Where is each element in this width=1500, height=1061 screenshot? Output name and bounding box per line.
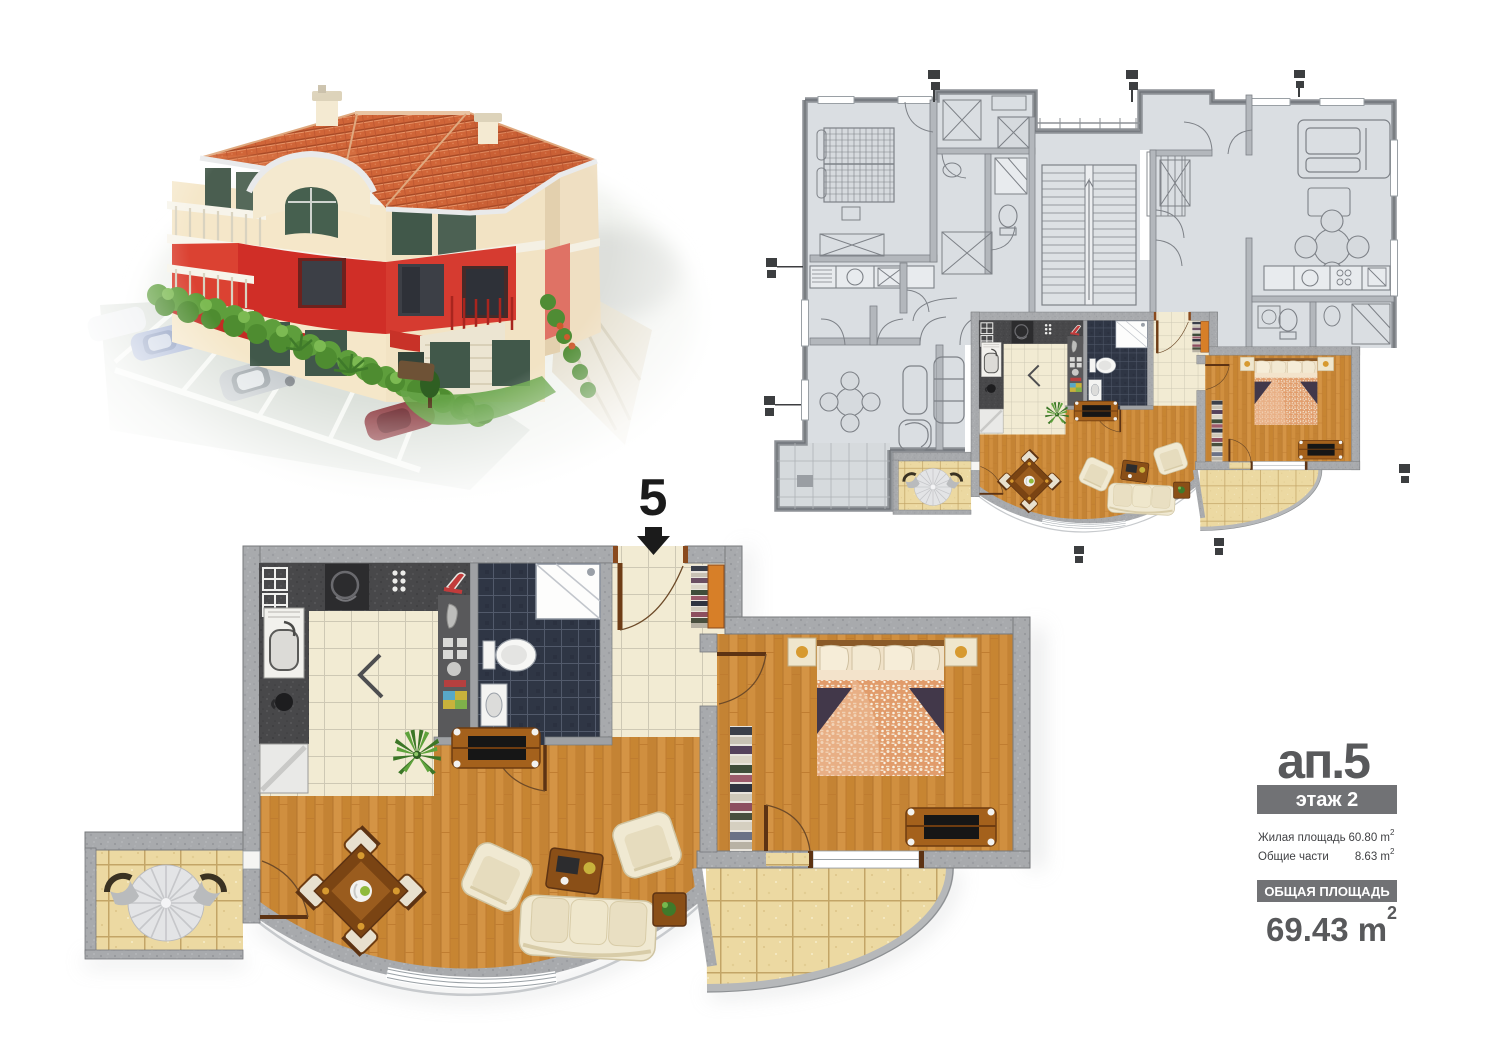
svg-text:2: 2 [1387,903,1397,923]
svg-text:ОБЩАЯ ПЛОЩАДЬ: ОБЩАЯ ПЛОЩАДЬ [1264,884,1389,899]
svg-text:5: 5 [639,469,668,527]
svg-text:Общие части: Общие части [1258,851,1329,863]
svg-text:60.80 m: 60.80 m [1348,832,1390,844]
svg-text:этаж 2: этаж 2 [1296,789,1359,811]
svg-text:ап.5: ап.5 [1277,733,1370,789]
svg-text:2: 2 [1390,828,1395,837]
svg-text:8.63 m: 8.63 m [1355,851,1390,863]
svg-text:69.43 m: 69.43 m [1266,911,1387,948]
svg-text:Жилая площадь: Жилая площадь [1258,832,1346,844]
svg-text:2: 2 [1390,847,1395,856]
